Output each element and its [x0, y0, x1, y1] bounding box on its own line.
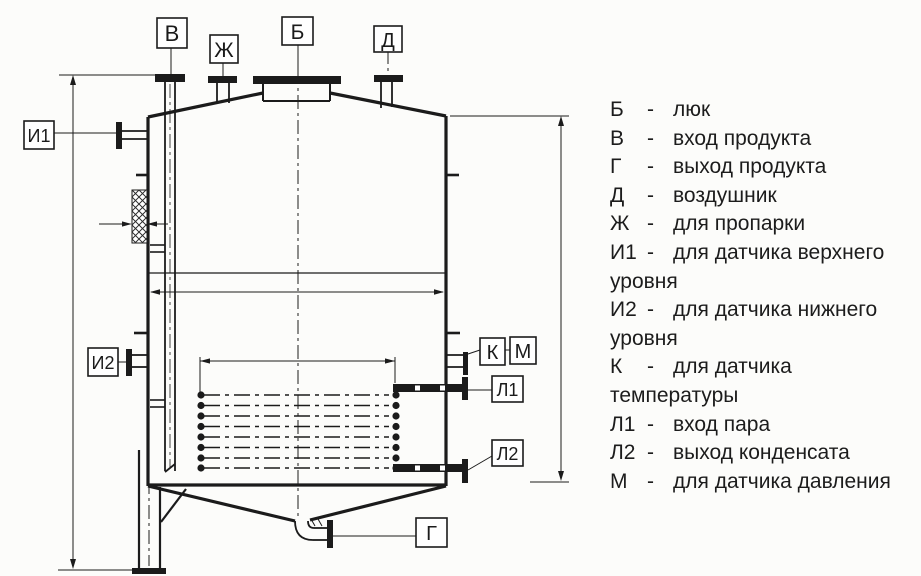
legend-dash: - — [647, 353, 673, 382]
centerlines — [149, 45, 388, 566]
legend: Б-люкВ-вход продуктаГ-выход продуктаД-во… — [610, 96, 915, 496]
label-box-V: В — [157, 18, 187, 48]
wall-ticks — [134, 175, 460, 333]
legend-letter: В — [610, 125, 647, 154]
legend-letter: Г — [610, 153, 647, 182]
legend-row: уровня — [610, 325, 915, 354]
legend-text: выход продукта — [673, 153, 826, 182]
label-box-L2: Л2 — [492, 440, 523, 466]
support-leg — [132, 450, 186, 574]
legend-row: Б-люк — [610, 96, 915, 125]
product-outlet-elbow — [295, 519, 333, 548]
legend-text: выход конденсата — [673, 439, 850, 468]
legend-text: воздушник — [673, 182, 777, 211]
label-box-K: К — [480, 338, 505, 365]
legend-letter: И1 — [610, 239, 647, 268]
condensate-outlet-pipe — [393, 459, 468, 483]
legend-letter: Л1 — [610, 411, 647, 440]
label-I2: И2 — [92, 353, 115, 373]
vessel-shell — [148, 93, 446, 521]
label-box-I2: И2 — [88, 348, 118, 376]
legend-text: для датчика — [673, 353, 792, 382]
legend-row: Л1-вход пара — [610, 411, 915, 440]
legend-letter: Д — [610, 182, 647, 211]
technical-drawing-page: В Ж Б Д И1 И2 — [0, 0, 921, 576]
legend-text: уровня — [610, 268, 678, 297]
legend-letter: Л2 — [610, 439, 647, 468]
label-box-D: Д — [374, 26, 402, 52]
legend-letter: Б — [610, 96, 647, 125]
legend-row: Ж-для пропарки — [610, 210, 915, 239]
legend-text: для датчика верхнего — [673, 239, 884, 268]
legend-row: И1-для датчика верхнего — [610, 239, 915, 268]
legend-dash: - — [647, 411, 673, 440]
legend-text: для пропарки — [673, 210, 805, 239]
legend-row: М-для датчика давления — [610, 468, 915, 497]
legend-text: вход продукта — [673, 125, 811, 154]
lower-level-sensor-nozzle — [126, 349, 148, 376]
legend-row: Л2-выход конденсата — [610, 439, 915, 468]
legend-letter: И2 — [610, 296, 647, 325]
legend-letter: М — [610, 468, 647, 497]
legend-text: для датчика давления — [673, 468, 891, 497]
legend-text: уровня — [610, 325, 678, 354]
legend-dash: - — [647, 296, 673, 325]
legend-dash: - — [647, 182, 673, 211]
legend-row: температуры — [610, 382, 915, 411]
label-Zh: Ж — [214, 39, 234, 62]
legend-row: В-вход продукта — [610, 125, 915, 154]
legend-text: температуры — [610, 382, 738, 411]
label-M: М — [515, 341, 532, 363]
legend-row: К-для датчика — [610, 353, 915, 382]
legend-row: уровня — [610, 268, 915, 297]
label-L2: Л2 — [497, 444, 519, 464]
label-box-M: М — [510, 337, 536, 364]
label-box-L1: Л1 — [492, 376, 523, 402]
label-box-Zh: Ж — [210, 35, 238, 63]
label-L1: Л1 — [497, 380, 519, 400]
dimension-lines — [58, 75, 569, 570]
legend-text: для датчика нижнего — [673, 296, 877, 325]
label-box-G: Г — [416, 518, 447, 547]
legend-dash: - — [647, 468, 673, 497]
legend-letter: К — [610, 353, 647, 382]
label-G: Г — [426, 523, 437, 545]
legend-row: Д-воздушник — [610, 182, 915, 211]
legend-letter: Ж — [610, 210, 647, 239]
legend-dash: - — [647, 96, 673, 125]
upper-level-sensor-nozzle — [116, 122, 148, 149]
label-I1: И1 — [28, 126, 51, 146]
label-D: Д — [381, 30, 395, 52]
legend-text: люк — [673, 96, 710, 125]
legend-row: Г-выход продукта — [610, 153, 915, 182]
legend-row: И2-для датчика нижнего — [610, 296, 915, 325]
legend-text: вход пара — [673, 411, 770, 440]
hatched-pad — [132, 190, 147, 243]
label-V: В — [165, 21, 180, 46]
label-K: К — [487, 342, 499, 364]
legend-dash: - — [647, 239, 673, 268]
steam-inlet-pipe — [393, 377, 468, 400]
label-B: Б — [291, 21, 305, 44]
manhole-nozzle — [253, 76, 341, 101]
legend-dash: - — [647, 153, 673, 182]
legend-dash: - — [647, 210, 673, 239]
label-box-I1: И1 — [24, 121, 54, 149]
legend-dash: - — [647, 125, 673, 154]
temp-pressure-sensor-nozzle — [446, 352, 468, 375]
leader-lines — [53, 45, 510, 536]
legend-dash: - — [647, 439, 673, 468]
label-box-B: Б — [282, 17, 313, 45]
